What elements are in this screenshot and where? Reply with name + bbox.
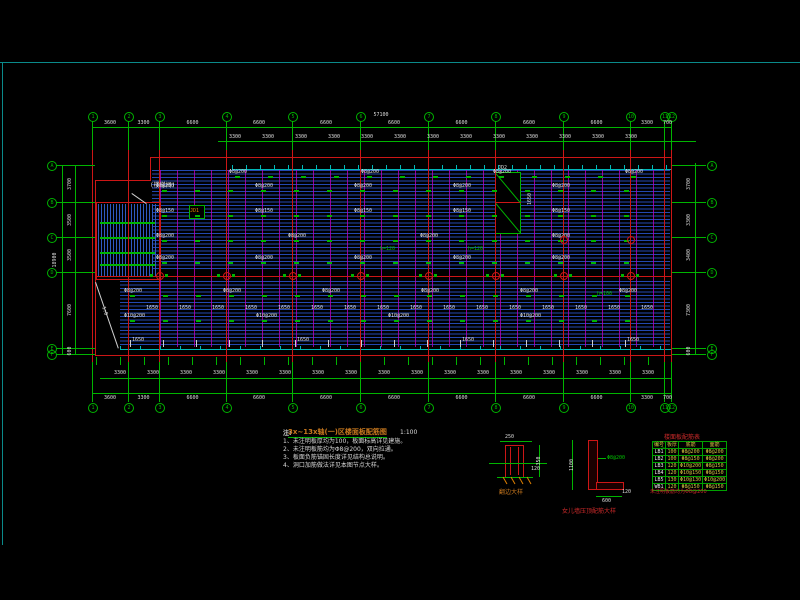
dim-line-top-1 — [92, 127, 671, 128]
table-cell: LB5 — [653, 477, 666, 484]
rebar-mark — [525, 215, 530, 217]
rebar-mark — [631, 176, 636, 178]
rebar-mark — [162, 240, 167, 242]
rebar-label: Φ8@200 — [288, 233, 306, 239]
rebar-mark — [591, 215, 596, 217]
rebar-mark — [328, 295, 333, 297]
flange-dim-line-top — [500, 441, 532, 442]
span-dim-label: 1650 — [575, 305, 587, 311]
rebar-tick — [229, 340, 230, 347]
grid-bubble-left: C — [47, 233, 57, 243]
opening-jd2 — [495, 172, 521, 234]
rebar-tick — [526, 340, 527, 347]
table-cell: Φ10@130 — [679, 477, 703, 484]
table-cell: 120 — [666, 470, 679, 477]
level-label: h=120 — [468, 246, 483, 252]
dim-right-bay: 3700 — [686, 174, 692, 194]
grid-line-v-green-bot — [360, 362, 361, 402]
rebar-label: Φ10@200 — [256, 313, 277, 319]
rebar-mark — [195, 240, 200, 242]
rebar-tick-label: 1650 — [132, 337, 144, 343]
rebar-label: Φ8@150 — [255, 208, 273, 214]
dim-bottom-sub: 3300 — [374, 370, 394, 376]
grid-bubble-bottom: 2 — [124, 403, 134, 413]
parapet-dim-height: 1100 — [569, 455, 575, 475]
dim-top-bay: 6600 — [249, 120, 269, 126]
rebar-mark — [261, 215, 266, 217]
rebar-label: Φ8@200 — [229, 169, 247, 175]
grid-line-v-green-bot — [226, 362, 227, 402]
rebar-mark — [195, 262, 200, 264]
grid-bubble-bottom: 3 — [155, 403, 165, 413]
rebar-tick — [295, 340, 296, 347]
column-symbol — [627, 236, 635, 244]
grid-line-v-green-bot — [292, 362, 293, 402]
ramp-label: 1:8 — [100, 306, 109, 316]
rebar-label: Φ8@200 — [453, 183, 471, 189]
rebar-mark — [294, 240, 299, 242]
rebar-mark — [295, 320, 300, 322]
rebar-tick — [163, 340, 164, 347]
column-flank — [150, 274, 153, 277]
dim-bottom-sub: 3300 — [143, 370, 163, 376]
cad-canvas: (楼梯间) 1:8 JD2 1650 JD1 11223344556677889… — [0, 0, 800, 600]
rebar-mark — [195, 215, 200, 217]
column-flank — [165, 274, 168, 277]
dim-top-sub: 3300 — [291, 134, 311, 140]
dim-top-bay: 6600 — [316, 120, 336, 126]
rebar-mark — [196, 320, 201, 322]
rebar-mark — [334, 176, 339, 178]
dim-bottom-sub: 3300 — [638, 370, 658, 376]
cyan-line-top — [232, 169, 671, 170]
dim-right-bay: 3300 — [686, 210, 692, 230]
rebar-label: Φ8@200 — [520, 288, 538, 294]
rebar-label: Φ8@200 — [421, 288, 439, 294]
dim-bottom-bay: 6600 — [452, 395, 472, 401]
table-cell: Φ10@150 — [679, 470, 703, 477]
grid-bubble-bottom: 8 — [491, 403, 501, 413]
table-cell: Φ8@150 — [703, 470, 727, 477]
opening-jd2-split — [495, 202, 521, 203]
rebar-mark — [228, 190, 233, 192]
dim-top-sub: 3300 — [423, 134, 443, 140]
rebar-mark — [327, 240, 332, 242]
dim-bottom-sub: 3300 — [275, 370, 295, 376]
column-symbol — [156, 272, 164, 280]
dim-left-overall: 18900 — [52, 250, 58, 270]
level-label: h=120 — [380, 246, 395, 252]
rebar-label: Φ8@200 — [124, 288, 142, 294]
rebar-tick-label: 1650 — [462, 337, 474, 343]
rebar-table-footnote: 未注明板筋均为Φ8@200 — [650, 488, 707, 495]
rebar-mark — [360, 262, 365, 264]
grid-line-v-green-bot — [495, 362, 496, 402]
rebar-label: Φ10@200 — [124, 313, 145, 319]
rebar-mark — [229, 295, 234, 297]
dim-top-sub: 3300 — [390, 134, 410, 140]
dim-line-top-2 — [218, 141, 696, 142]
dim-top-bay: 6600 — [183, 120, 203, 126]
parapet-dim-line-leg — [596, 496, 622, 497]
span-dim-label: 1650 — [608, 305, 620, 311]
span-dim-label: 1650 — [212, 305, 224, 311]
dim-line-left-overall — [62, 165, 63, 354]
rebar-mark — [361, 320, 366, 322]
dim-bottom-sub: 3300 — [605, 370, 625, 376]
column-flank — [554, 274, 557, 277]
rebar-label: Φ8@200 — [156, 255, 174, 261]
grid-line-v-green-bot — [92, 362, 93, 402]
grid-line-v-green-bot — [128, 362, 129, 402]
table-cell: Φ8@150 — [679, 456, 703, 463]
rebar-mark — [228, 262, 233, 264]
dim-top-sub: 3300 — [522, 134, 542, 140]
rebar-mark — [162, 215, 167, 217]
plan-edge-top — [150, 157, 672, 158]
table-cell: 100 — [666, 456, 679, 463]
rebar-mark — [565, 176, 570, 178]
dim-top-sub: 3300 — [456, 134, 476, 140]
grid-line-v-red — [664, 150, 665, 362]
dim-bottom-bay: 6600 — [249, 395, 269, 401]
dim-bottom-bay: 6600 — [183, 395, 203, 401]
dim-top-bay: 6600 — [587, 120, 607, 126]
parapet-leg — [596, 482, 624, 490]
rebar-label: Φ10@200 — [388, 313, 409, 319]
dim-left-bay: 3500 — [67, 210, 73, 230]
parapet-dim-thick: 120 — [622, 489, 631, 495]
dim-line-bottom-2 — [100, 378, 671, 379]
grid-bubble-right: A — [707, 161, 717, 171]
dim-bottom-bay: 3300 — [134, 395, 154, 401]
rebar-mark — [426, 262, 431, 264]
grid-bubble-bottom: 6 — [356, 403, 366, 413]
dim-top-sub: 3300 — [324, 134, 344, 140]
grid-bubble-right: F — [707, 350, 717, 360]
span-dim-label: 1650 — [509, 305, 521, 311]
rebar-tick-label: 1650 — [627, 337, 639, 343]
table-cell: 编号 — [653, 442, 666, 449]
rebar-mark — [525, 240, 530, 242]
dim-bottom-sub: 3300 — [440, 370, 460, 376]
dim-bottom-sub: 3300 — [506, 370, 526, 376]
rebar-mark — [492, 215, 497, 217]
rebar-tick — [625, 340, 626, 347]
dim-left-bay: 3700 — [67, 174, 73, 194]
rebar-tick — [196, 340, 197, 347]
table-cell: 面筋 — [703, 442, 727, 449]
rebar-mark — [433, 176, 438, 178]
table-cell: Φ8@200 — [703, 456, 727, 463]
rebar-mark — [162, 190, 167, 192]
rebar-mark — [466, 176, 471, 178]
rebar-table-title: 楼面板配筋表 — [664, 432, 700, 441]
rebar-mark — [393, 190, 398, 192]
rebar-mark — [261, 240, 266, 242]
dim-bottom-sub: 3300 — [407, 370, 427, 376]
grid-line-v-green-bot — [428, 362, 429, 402]
grid-bubble-top: 1 — [88, 112, 98, 122]
column-flank — [217, 274, 220, 277]
rebar-mark — [268, 176, 273, 178]
rebar-label: Φ8@200 — [625, 169, 643, 175]
rebar-label: Φ8@200 — [156, 183, 174, 189]
grid-bubble-top: 8 — [491, 112, 501, 122]
column-flank — [419, 274, 422, 277]
table-row: LB4120Φ10@150Φ8@150 — [653, 470, 727, 477]
rebar-mark — [361, 295, 366, 297]
dim-top-bay: 3300 — [134, 120, 154, 126]
rebar-mark — [130, 320, 135, 322]
flange-caption: 翻边大样 — [499, 487, 523, 496]
flange-rebar-inner-1 — [510, 447, 511, 475]
flange-dim-top: 250 — [505, 434, 514, 440]
dim-left-bay: 7600 — [67, 300, 73, 320]
column-symbol — [289, 272, 297, 280]
dim-top-sub: 3300 — [489, 134, 509, 140]
rebar-mark — [591, 240, 596, 242]
grid-line-v-red — [630, 150, 631, 362]
column-flank — [351, 274, 354, 277]
plan-edge-step-v — [150, 157, 151, 181]
dim-bottom-bay: 6600 — [384, 395, 404, 401]
span-dim-label: 1650 — [641, 305, 653, 311]
rebar-label: Φ8@200 — [354, 255, 372, 261]
rebar-mark — [327, 215, 332, 217]
span-dim-label: 1650 — [410, 305, 422, 311]
grid-line-h-green-left — [56, 354, 95, 355]
grid-bubble-bottom: 1 — [88, 403, 98, 413]
grid-bubble-top: 6 — [356, 112, 366, 122]
rebar-tick — [328, 340, 329, 347]
flange-wall-right — [523, 445, 524, 477]
rebar-mark — [427, 320, 432, 322]
grid-bubble-left: F — [47, 350, 57, 360]
rebar-label: Φ8@150 — [156, 208, 174, 214]
rebar-mark — [558, 190, 563, 192]
rebar-mark — [592, 320, 597, 322]
rebar-mark — [459, 262, 464, 264]
rebar-mark — [624, 262, 629, 264]
grid-bubble-right: B — [707, 198, 717, 208]
grid-bubble-top: 4 — [222, 112, 232, 122]
rebar-mark — [393, 240, 398, 242]
rebar-mark — [393, 215, 398, 217]
dim-right-bay: 3400 — [686, 245, 692, 265]
span-dim-label: 1650 — [311, 305, 323, 311]
table-row: LB5130Φ10@130Φ10@200 — [653, 477, 727, 484]
rebar-tick — [427, 340, 428, 347]
rebar-mark — [235, 176, 240, 178]
rebar-mark — [294, 190, 299, 192]
dim-top-bay: 3300 — [637, 120, 657, 126]
column-symbol — [425, 272, 433, 280]
rebar-mark — [526, 295, 531, 297]
rebar-mark — [459, 240, 464, 242]
grid-line-h-green-right — [672, 237, 706, 238]
rebar-tick-label: 1650 — [297, 337, 309, 343]
rebar-tick — [559, 340, 560, 347]
table-row: 编号板厚底筋面筋 — [653, 442, 727, 449]
rebar-mark — [295, 295, 300, 297]
rebar-label: Φ8@150 — [453, 208, 471, 214]
plan-edge-bottom — [95, 355, 672, 356]
column-symbol — [223, 272, 231, 280]
dim-bottom-sub: 3300 — [110, 370, 130, 376]
dim-top-overall: 57100 — [371, 112, 391, 118]
rebar-mark — [360, 190, 365, 192]
rebar-mark — [261, 262, 266, 264]
rebar-mark — [360, 215, 365, 217]
dim-bottom-bay: 3600 — [100, 395, 120, 401]
rebar-label: Φ8@150 — [354, 208, 372, 214]
parapet-dim-leg: 600 — [602, 498, 611, 504]
dim-bottom-bay: 6600 — [519, 395, 539, 401]
rebar-tick — [130, 340, 131, 347]
note-line: 2、未注明板筋均为Φ8@200，双向拉通。 — [283, 446, 406, 454]
rebar-mark — [492, 262, 497, 264]
rebar-mark — [228, 240, 233, 242]
dim-top-sub: 3300 — [225, 134, 245, 140]
rebar-mark — [261, 190, 266, 192]
table-cell: LB3 — [653, 463, 666, 470]
rebar-mark — [367, 176, 372, 178]
column-flank — [434, 274, 437, 277]
rebar-label: Φ8@200 — [361, 169, 379, 175]
rebar-mark — [624, 190, 629, 192]
green-fringe-bottom — [96, 357, 671, 365]
rebar-mark — [229, 320, 234, 322]
rebar-mark — [493, 320, 498, 322]
span-dim-label: 1650 — [344, 305, 356, 311]
dim-bottom-sub: 3300 — [209, 370, 229, 376]
rebar-mark — [400, 176, 405, 178]
mid-beam-line — [95, 276, 672, 277]
rebar-label: Φ8@200 — [354, 183, 372, 189]
grid-bubble-bottom: 10 — [626, 403, 636, 413]
rebar-tick — [262, 340, 263, 347]
column-flank — [298, 274, 301, 277]
rebar-mark — [558, 262, 563, 264]
dim-top-sub: 3300 — [357, 134, 377, 140]
detail-flange: 250 350 120 翻边大样 — [487, 433, 551, 497]
span-dim-label: 1650 — [146, 305, 158, 311]
span-dim-label: 1650 — [476, 305, 488, 311]
grid-line-v-red — [92, 150, 93, 362]
flange-dim-slab: 120 — [531, 466, 540, 472]
rebar-tick — [394, 340, 395, 347]
rebar-mark — [196, 295, 201, 297]
rebar-mark — [294, 215, 299, 217]
ramp-line — [95, 282, 119, 349]
rebar-mark — [525, 262, 530, 264]
rebar-mark — [427, 295, 432, 297]
dim-bottom-sub: 3300 — [539, 370, 559, 376]
dim-top-bay: 3600 — [100, 120, 120, 126]
rebar-label: Φ8@200 — [552, 183, 570, 189]
rebar-table: 编号板厚底筋面筋LB1100Φ8@200Φ8@200LB2100Φ8@150Φ8… — [652, 441, 727, 491]
rebar-mark — [163, 320, 168, 322]
table-cell: 板厚 — [666, 442, 679, 449]
grid-bubble-top: 2 — [124, 112, 134, 122]
table-cell: LB4 — [653, 470, 666, 477]
grid-line-h-green-right — [672, 202, 706, 203]
rebar-mark — [624, 215, 629, 217]
column-flank — [569, 274, 572, 277]
rebar-mark — [526, 320, 531, 322]
rebar-mark — [328, 320, 333, 322]
dim-bottom-sub: 3300 — [572, 370, 592, 376]
grid-line-h-green-right — [672, 165, 706, 166]
note-line: 3、板面负筋锚固长度详见结构总说明。 — [283, 454, 406, 462]
grid-bubble-top: 3 — [155, 112, 165, 122]
rebar-mark — [598, 176, 603, 178]
parapet-caption: 女儿墙压顶配筋大样 — [562, 506, 616, 515]
dim-top-bay: 6600 — [384, 120, 404, 126]
parapet-rebar-leader — [598, 458, 606, 459]
grid-bubble-bottom: 12 — [667, 403, 677, 413]
dim-top-sub: 3300 — [555, 134, 575, 140]
table-cell: Φ8@200 — [703, 449, 727, 456]
magenta-grid-overlay — [160, 170, 665, 347]
span-dim-label: 1650 — [377, 305, 389, 311]
rebar-mark — [130, 295, 135, 297]
span-dim-label: 1650 — [245, 305, 257, 311]
table-row: LB2100Φ8@150Φ8@200 — [653, 456, 727, 463]
grid-bubble-top: 5 — [288, 112, 298, 122]
rebar-mark — [460, 295, 465, 297]
rebar-mark — [426, 215, 431, 217]
dim-top-bay: 6600 — [452, 120, 472, 126]
rebar-mark — [525, 190, 530, 192]
rebar-label: Φ8@200 — [255, 255, 273, 261]
rebar-mark — [492, 240, 497, 242]
rebar-label: Φ8@200 — [420, 233, 438, 239]
rebar-mark — [327, 262, 332, 264]
span-dim-label: 1650 — [542, 305, 554, 311]
rebar-mark — [426, 190, 431, 192]
flange-wall-top — [505, 445, 524, 446]
dim-bottom-bay: 6600 — [587, 395, 607, 401]
rebar-mark — [327, 190, 332, 192]
rebar-tick — [493, 340, 494, 347]
rebar-mark — [532, 176, 537, 178]
span-dim-label: 1650 — [278, 305, 290, 311]
dim-line-left-bays — [75, 165, 76, 354]
rebar-label: Φ8@200 — [156, 233, 174, 239]
column-flank — [501, 274, 504, 277]
dim-bottom-bay: 6600 — [316, 395, 336, 401]
rebar-mark — [558, 215, 563, 217]
dim-top-bay: 700 — [658, 120, 678, 126]
opening-jd2-dim: 1650 — [527, 193, 533, 205]
dim-bottom-sub: 3300 — [473, 370, 493, 376]
span-dim-label: 1650 — [179, 305, 191, 311]
rebar-label: Φ8@200 — [255, 183, 273, 189]
column-symbol — [560, 236, 568, 244]
dim-top-sub: 3300 — [588, 134, 608, 140]
table-row: LB1100Φ8@200Φ8@200 — [653, 449, 727, 456]
rebar-mark — [360, 240, 365, 242]
grid-bubble-bottom: 5 — [288, 403, 298, 413]
rebar-mark — [492, 190, 497, 192]
grid-line-v-green-bot — [563, 362, 564, 402]
rebar-mark — [459, 190, 464, 192]
dim-line-bottom-1 — [92, 393, 671, 394]
dim-bottom-sub: 3300 — [176, 370, 196, 376]
rebar-mark — [262, 320, 267, 322]
